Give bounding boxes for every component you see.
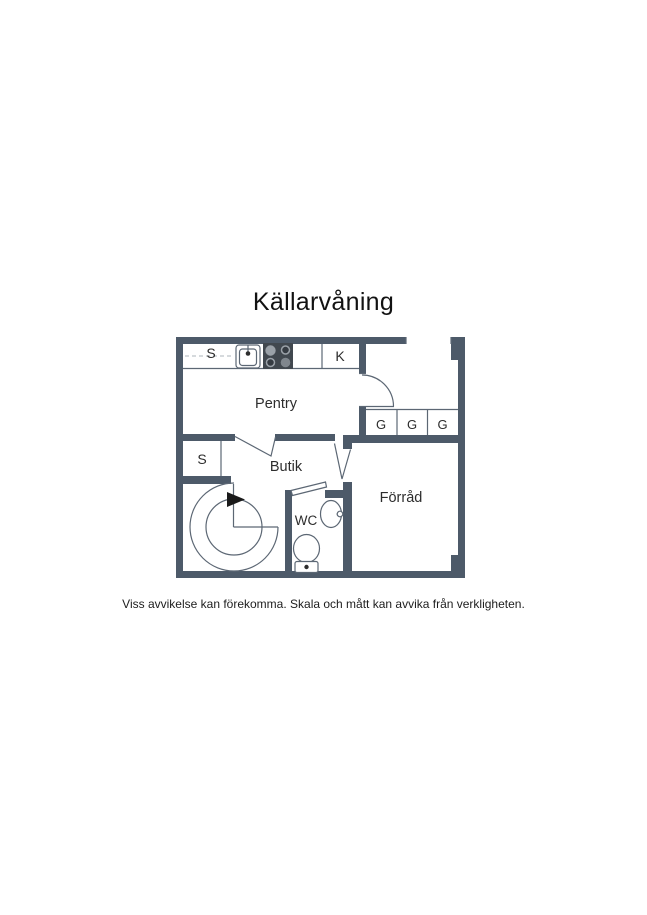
label-forrad: Förråd	[380, 490, 423, 506]
kitchen-sink	[236, 345, 260, 368]
pillar-bottom-right	[451, 555, 458, 571]
label-cabinet-top: S	[206, 345, 215, 361]
label-wardrobe-2: G	[407, 417, 417, 432]
wall-stub-butik-east	[343, 443, 352, 449]
wall-wc-forrad	[343, 482, 352, 571]
wall-wc-top	[325, 490, 343, 498]
floorplan-page: Källarvåning	[0, 0, 647, 915]
wall-pentry-butik-left	[183, 434, 235, 441]
wall-outer-bottom	[176, 571, 465, 578]
label-closet: S	[197, 451, 206, 467]
wall-closet-bottom	[183, 476, 231, 484]
opening-pentry-butik	[235, 437, 276, 457]
label-wardrobe-1: G	[376, 417, 386, 432]
disclaimer-text: Viss avvikelse kan förekomma. Skala och …	[0, 597, 647, 611]
spiral-staircase	[190, 483, 278, 571]
walls	[176, 337, 465, 578]
floor-plan-drawing: S K Pentry G G G S Butik WC Förråd	[0, 0, 647, 915]
hall-door-arc	[362, 375, 394, 407]
wc-sink	[321, 501, 344, 528]
pillar-top-right	[451, 344, 458, 360]
partition-lines	[183, 337, 458, 476]
toilet	[294, 535, 320, 573]
wall-wc-left	[285, 490, 292, 571]
label-wc: WC	[295, 513, 318, 528]
label-butik: Butik	[270, 459, 303, 475]
staircase-direction-arrow-icon	[227, 492, 245, 507]
wall-outer-top	[176, 337, 406, 344]
label-fridge: K	[335, 348, 345, 364]
wall-pentry-butik-right	[275, 434, 335, 441]
wall-forrad-top	[343, 435, 458, 443]
wall-outer-left	[176, 337, 183, 578]
stove	[263, 343, 293, 369]
wall-pentry-right-upper	[359, 344, 366, 373]
wall-outer-right	[458, 337, 465, 578]
wc-door-leaf	[291, 482, 327, 496]
label-pentry: Pentry	[255, 396, 298, 412]
label-wardrobe-3: G	[437, 417, 447, 432]
